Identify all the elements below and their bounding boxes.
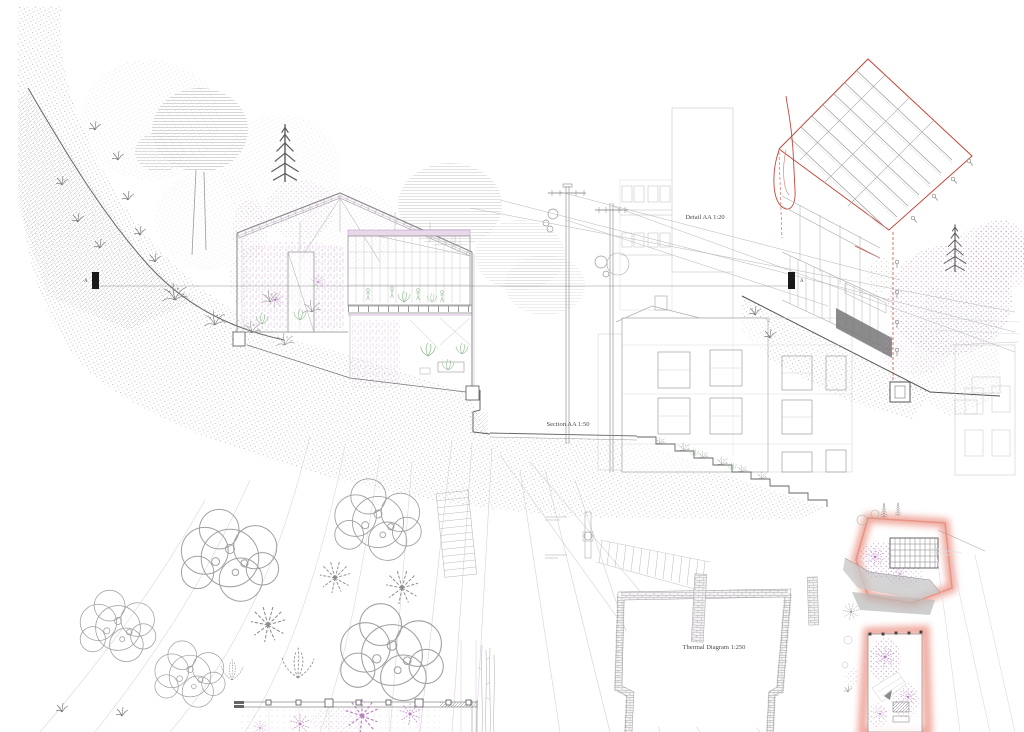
plan-palms-ferns [56, 562, 418, 717]
section-marker-left-label: A [84, 279, 88, 284]
courtyard-interior [625, 597, 785, 728]
courtyard-plan: Thermal Diagram 1:250 [615, 574, 819, 732]
section-label: Section AA 1:50 [547, 421, 590, 428]
roof-purlins [800, 74, 934, 206]
detail-foliage [868, 225, 1024, 375]
section-marker-right [788, 272, 795, 289]
plan-fan-steps [596, 540, 710, 592]
plan-utility-pole [545, 512, 593, 558]
thermal-plan-upper [843, 502, 985, 615]
foreground-house [598, 296, 852, 472]
plan-tree-canopies [80, 479, 443, 707]
detail-label: Detail AA 1:20 [685, 214, 724, 221]
interior-door [288, 252, 314, 332]
architectural-drawing: Thermal Diagram 1:250 [0, 0, 1024, 732]
footing-detail [890, 382, 910, 402]
roof-rafters [790, 70, 952, 228]
building-massing-outline [672, 108, 733, 272]
thermal-diagram-label: Thermal Diagram 1:250 [683, 644, 746, 651]
section-marker-right-label: A [800, 279, 804, 284]
section-marker-left [92, 272, 99, 289]
people-figures [366, 287, 444, 302]
drawing-board: Thermal Diagram 1:250 [0, 0, 1024, 732]
floor-slab [348, 305, 472, 315]
thermal-diagrams [842, 502, 1015, 732]
